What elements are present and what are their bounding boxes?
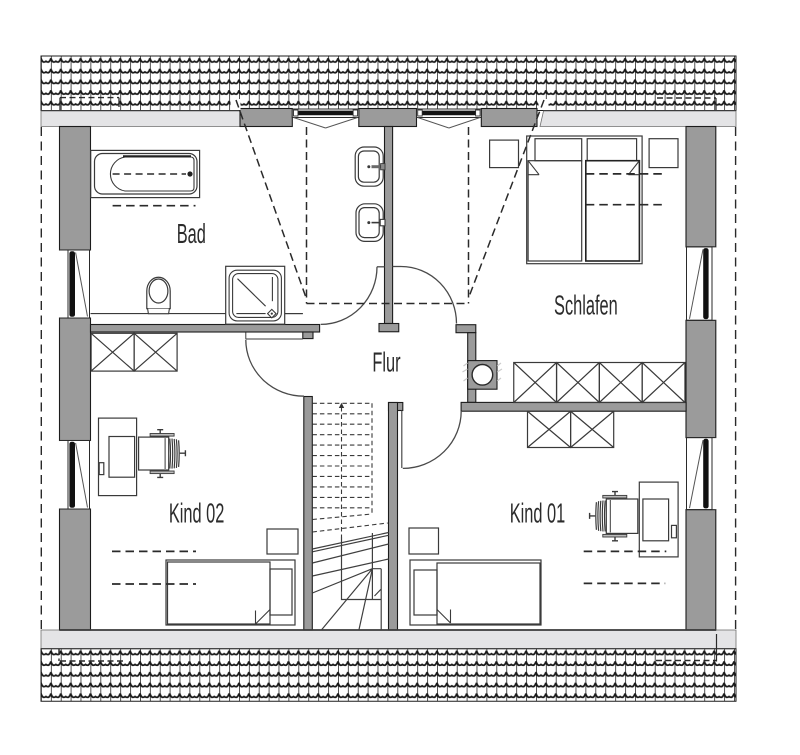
svg-text:Flur: Flur <box>372 346 400 378</box>
svg-text:Schlafen: Schlafen <box>554 289 618 321</box>
svg-text:Kind 01: Kind 01 <box>510 497 566 529</box>
svg-text:Bad: Bad <box>177 217 206 249</box>
svg-text:Kind 02: Kind 02 <box>169 497 225 529</box>
